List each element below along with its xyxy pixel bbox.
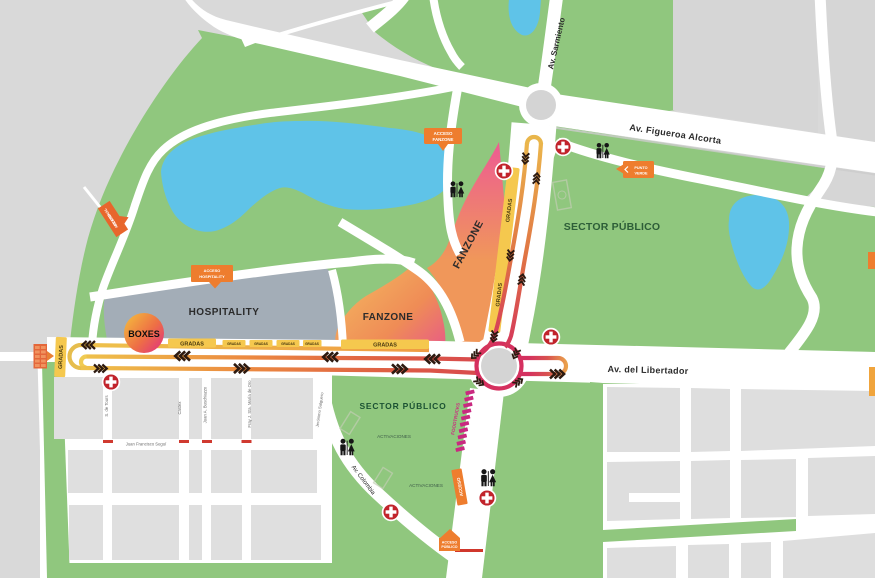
svg-text:HOSPITALITY: HOSPITALITY <box>199 274 225 279</box>
svg-text:FANZONE: FANZONE <box>433 137 454 142</box>
svg-text:ACCESO: ACCESO <box>442 541 458 545</box>
svg-text:Juan Francisco Seguí: Juan Francisco Seguí <box>126 442 167 447</box>
svg-text:FANZONE: FANZONE <box>363 312 414 323</box>
svg-text:HOSPITALITY: HOSPITALITY <box>189 307 260 318</box>
svg-text:GRADAS: GRADAS <box>180 342 204 348</box>
svg-text:GRADAS: GRADAS <box>58 345 65 369</box>
svg-text:ACCESO: ACCESO <box>204 268 221 273</box>
svg-text:BOXES: BOXES <box>128 329 160 339</box>
svg-text:ACTIVACIONES: ACTIVACIONES <box>409 483 443 488</box>
svg-text:SECTOR PÚBLICO: SECTOR PÚBLICO <box>564 220 661 233</box>
svg-text:ACTIVACIONES: ACTIVACIONES <box>377 434 411 439</box>
svg-text:Fray J. Sta. María de Oro: Fray J. Sta. María de Oro <box>247 380 252 428</box>
svg-text:ACCESO: ACCESO <box>434 131 453 136</box>
svg-text:GRADAS: GRADAS <box>227 342 241 346</box>
svg-text:Castex: Castex <box>177 401 182 415</box>
svg-text:Juan A. Buschiazzo: Juan A. Buschiazzo <box>203 386 208 423</box>
svg-text:GRADAS: GRADAS <box>305 342 319 346</box>
svg-text:GRADAS: GRADAS <box>254 342 268 346</box>
svg-text:GRADAS: GRADAS <box>281 342 295 346</box>
svg-text:VERDE: VERDE <box>634 172 648 176</box>
svg-text:Av. del Libertador: Av. del Libertador <box>608 364 689 376</box>
svg-text:SECTOR PÚBLICO: SECTOR PÚBLICO <box>359 400 446 411</box>
svg-text:PÚBLICO: PÚBLICO <box>441 544 457 549</box>
svg-text:S. de Tours: S. de Tours <box>104 395 109 416</box>
svg-text:GRADAS: GRADAS <box>373 343 397 349</box>
svg-text:PUNTO: PUNTO <box>634 166 647 170</box>
